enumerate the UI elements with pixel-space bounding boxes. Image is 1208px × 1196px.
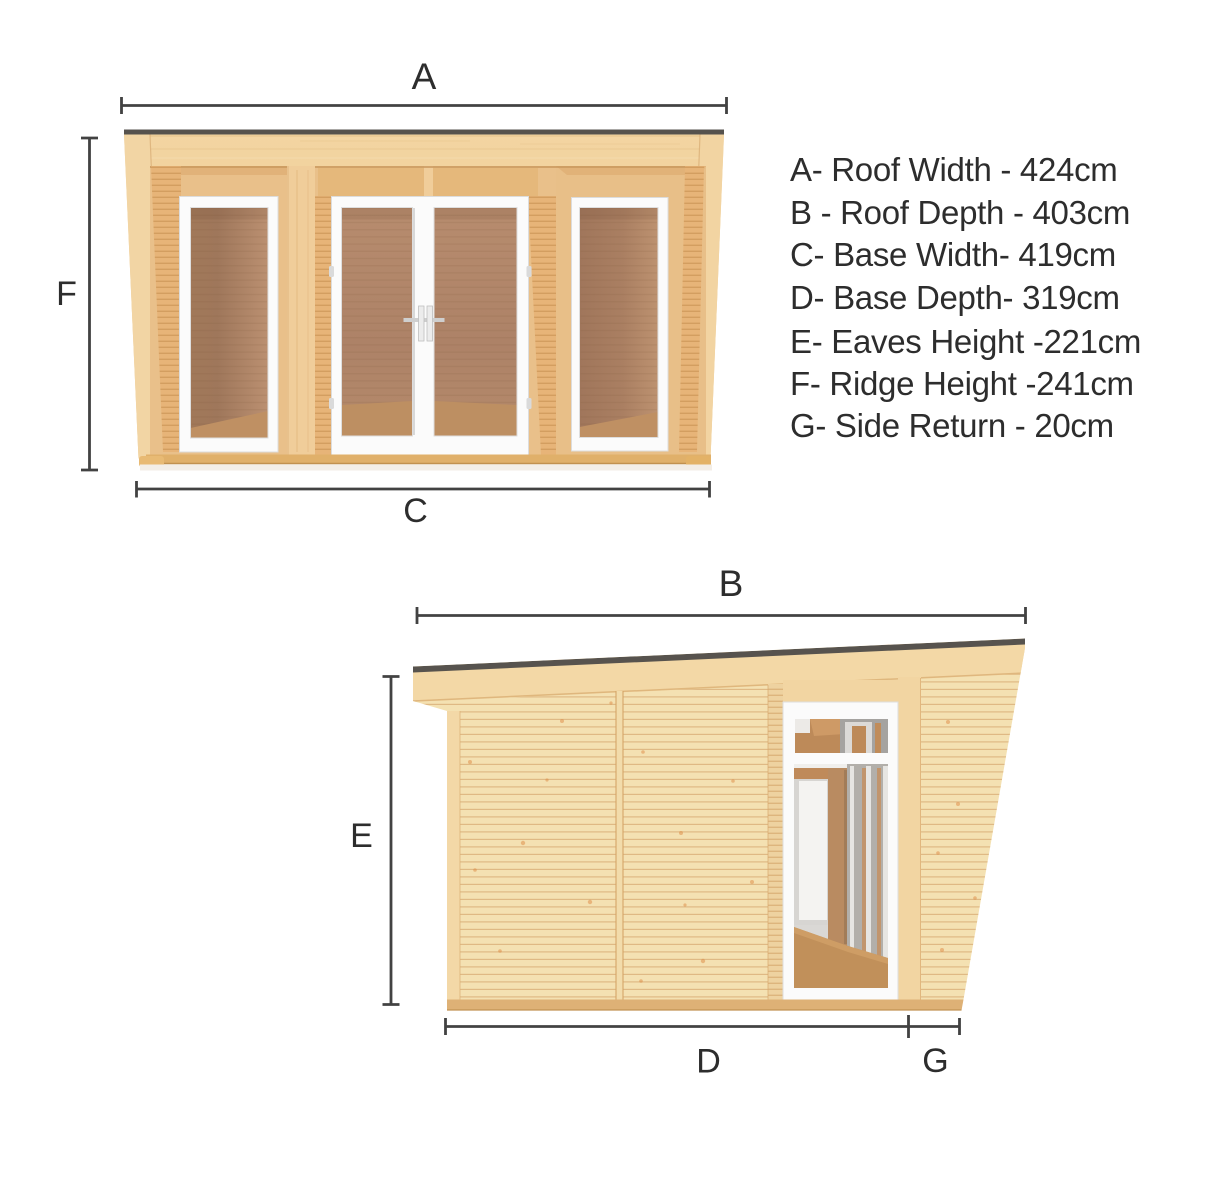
svg-text:A- Roof Width - 424cm: A- Roof Width - 424cm: [790, 151, 1117, 188]
svg-text:A: A: [412, 56, 437, 97]
svg-text:C: C: [403, 492, 428, 530]
svg-text:F: F: [56, 275, 77, 313]
svg-text:G- Side Return - 20cm: G- Side Return - 20cm: [790, 407, 1114, 444]
svg-text:D: D: [696, 1043, 721, 1081]
svg-text:B: B: [719, 563, 744, 604]
svg-text:G: G: [922, 1042, 948, 1080]
svg-text:F- Ridge Height -241cm: F- Ridge Height -241cm: [790, 365, 1134, 402]
svg-text:B - Roof Depth - 403cm: B - Roof Depth - 403cm: [790, 194, 1130, 231]
svg-text:E- Eaves Height -221cm: E- Eaves Height -221cm: [790, 323, 1141, 360]
svg-text:C- Base Width- 419cm: C- Base Width- 419cm: [790, 236, 1116, 273]
svg-text:D- Base Depth- 319cm: D- Base Depth- 319cm: [790, 279, 1120, 316]
svg-text:E: E: [350, 817, 373, 855]
